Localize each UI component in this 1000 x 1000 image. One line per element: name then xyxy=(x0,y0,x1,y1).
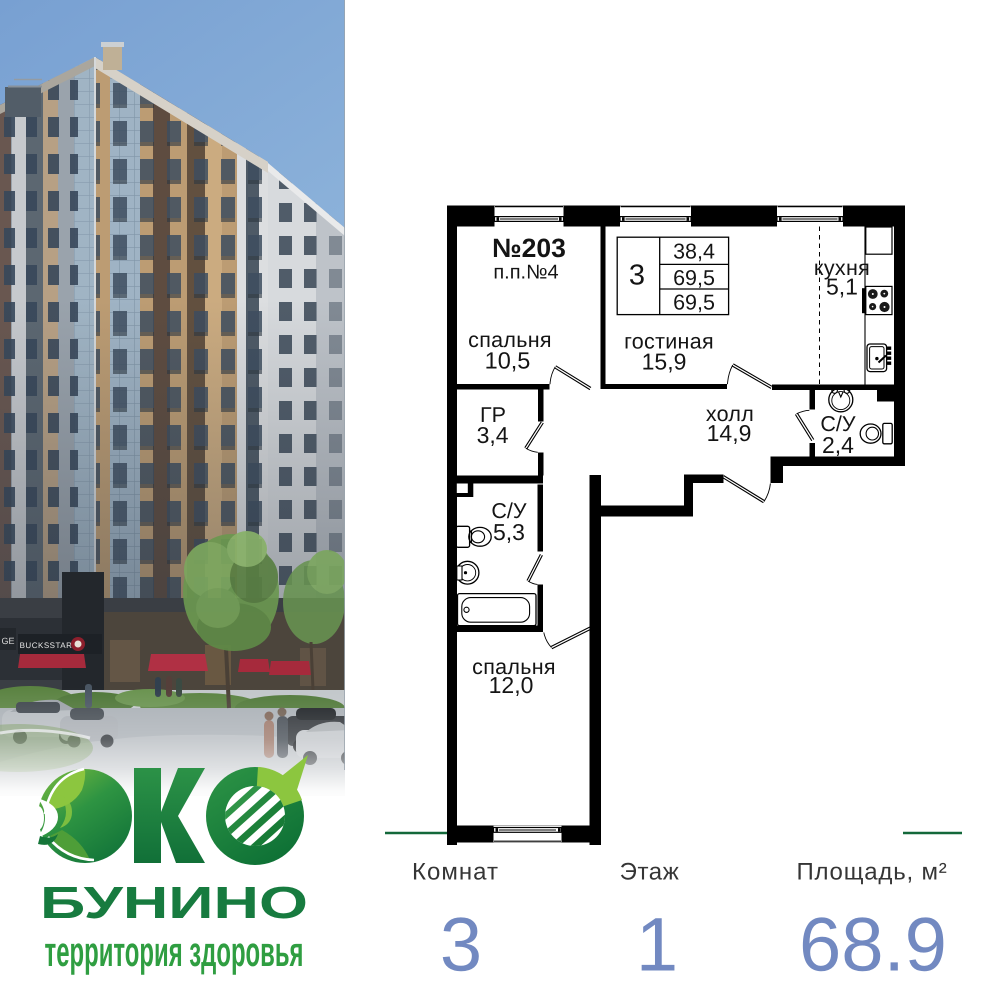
svg-text:территория здоровья: территория здоровья xyxy=(45,930,304,976)
svg-text:5,1: 5,1 xyxy=(826,274,858,300)
svg-text:№203: №203 xyxy=(492,233,566,263)
svg-text:GE: GE xyxy=(1,636,14,646)
svg-text:1: 1 xyxy=(636,903,678,988)
svg-text:68.9: 68.9 xyxy=(799,903,947,988)
svg-text:Площадь, м²: Площадь, м² xyxy=(796,859,947,886)
svg-text:3: 3 xyxy=(629,260,645,292)
svg-text:10,5: 10,5 xyxy=(485,347,531,373)
svg-text:12,0: 12,0 xyxy=(489,672,534,698)
svg-text:БУНИНО: БУНИНО xyxy=(40,877,308,928)
svg-text:15,9: 15,9 xyxy=(642,349,687,375)
svg-text:3: 3 xyxy=(440,903,482,988)
svg-text:69,5: 69,5 xyxy=(673,266,715,290)
svg-text:3,4: 3,4 xyxy=(477,422,509,448)
svg-text:69,5: 69,5 xyxy=(673,290,715,314)
svg-text:38,4: 38,4 xyxy=(673,239,715,263)
svg-text:5,3: 5,3 xyxy=(493,519,525,545)
svg-text:14,9: 14,9 xyxy=(707,420,752,446)
svg-text:п.п.№4: п.п.№4 xyxy=(493,262,558,284)
svg-text:Этаж: Этаж xyxy=(620,859,680,886)
svg-text:2,4: 2,4 xyxy=(822,432,854,458)
svg-text:BUCKSSTAR: BUCKSSTAR xyxy=(20,641,73,650)
svg-text:Комнат: Комнат xyxy=(412,859,499,886)
